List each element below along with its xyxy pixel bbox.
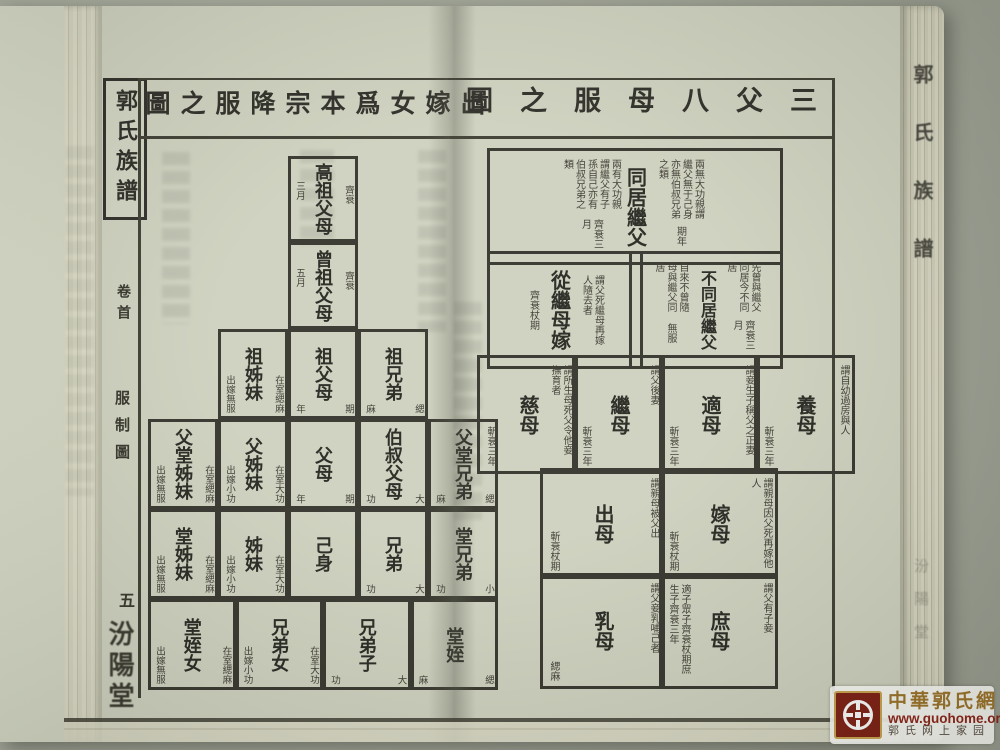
relation-label: 同居繼父 xyxy=(621,167,650,247)
mourning-note: 功 xyxy=(328,675,339,685)
parent-cell: 先曾與繼父同居今不同居 齊衰三月 不同居繼父 自來不曾隨母與繼父同居 無服 xyxy=(629,251,783,369)
kin-label: 祖兄弟 xyxy=(380,347,406,401)
mourning-note: 齊衰 xyxy=(342,271,353,290)
spine-hall-name: 汾陽堂 xyxy=(910,558,931,657)
definition-note: 謂妾生子稱父之正妻 xyxy=(742,365,754,464)
mourning-note: 在室緦麻 xyxy=(202,465,213,503)
guohome-logo-icon xyxy=(834,691,882,739)
definition-note: 謂父後妻 xyxy=(647,365,659,464)
kin-label: 己身 xyxy=(310,536,336,572)
annotation-pair: 兩有大功親謂繼父有子孫自己亦有伯叔兄弟之類 齊衰三月 xyxy=(567,159,615,254)
photo-scene: 郭氏族譜 卷首 服制圖 五 汾陽堂 出嫁女爲本宗降服之圖 齊衰 高祖父母 三月 … xyxy=(0,0,1000,750)
definition-note: 謂父死繼母再嫁人隨去者 xyxy=(580,275,604,345)
book-fore-edge: 郭氏族譜 汾陽堂 xyxy=(900,6,944,742)
kin-label: 父堂姊妹 xyxy=(170,428,196,500)
definition-note: 謂所生母死父令他妾撫育者 xyxy=(548,365,572,464)
bleedthrough-ghost xyxy=(66,146,94,496)
mourning-note: 麻 xyxy=(363,404,374,414)
mother-cell: 謂自幼過房與人 養母 斬衰三年 xyxy=(754,355,855,474)
kin-cell: 在室緦麻 父堂姊妹 出嫁無服 xyxy=(148,419,218,509)
right-page: 三父八母服之圖 兩無大功親謂繼父無于己身亦無伯叔兄弟之類 期年 同居繼父 兩有大… xyxy=(442,6,844,718)
definition-note: 兩有大功親謂繼父有子孫自己亦有伯叔兄弟之類 xyxy=(561,159,621,215)
mourning-note: 期 xyxy=(342,494,353,504)
kin-label: 祖姊妹 xyxy=(240,347,266,401)
kin-label: 兄弟 xyxy=(380,536,406,572)
definition-note: 謂親母被父出 xyxy=(647,478,659,569)
kin-cell: 在室緦麻 祖姊妹 出嫁無服 xyxy=(218,329,288,419)
kin-cell: 在室大功 兄弟女 出嫁小功 xyxy=(236,599,324,690)
mourning-note: 麻 xyxy=(416,675,427,685)
mourning-note: 三月 xyxy=(293,181,304,200)
mourning-note: 在室大功 xyxy=(272,555,283,593)
mourning-note: 在室緦麻 xyxy=(272,375,283,413)
page-frame-line xyxy=(448,78,834,80)
mother-cell: 謂親母被父出 出母 斬衰杖期 xyxy=(540,468,665,579)
kin-cell: 期 父母 年 xyxy=(288,419,358,509)
mourning-note: 齊衰 xyxy=(342,185,353,204)
logo-center xyxy=(853,710,863,720)
mourning-note: 緦 xyxy=(412,404,423,414)
site-tagline: 郭氏网上家园 xyxy=(888,726,1000,738)
mourning-grade: 齊衰三月 xyxy=(579,219,603,254)
self-cell: 己身 xyxy=(288,509,358,599)
mourning-note: 期 xyxy=(342,404,353,414)
mourning-note: 功 xyxy=(363,494,374,504)
mourning-grade: 斬衰杖期 xyxy=(547,531,559,571)
relation-label: 不同居繼父 xyxy=(694,270,718,350)
mourning-grade: 適子眾子齊衰杖期庶生子齊衰三年 xyxy=(666,584,690,678)
underlying-page xyxy=(0,6,64,742)
annotation-pair: 自來不曾隨母與繼父同居 無服 xyxy=(652,262,688,358)
mourning-grade: 斬衰三年 xyxy=(761,426,773,466)
margin-divider-line xyxy=(138,78,141,698)
definition-note: 謂自幼過房與人 xyxy=(837,365,849,464)
kin-label: 兄弟子 xyxy=(354,618,380,672)
kin-cell: 大 伯叔父母 功 xyxy=(358,419,428,509)
mother-cell: 謂親母因父死再嫁他人 嫁母 斬衰杖期 xyxy=(659,468,778,579)
relation-label: 出母 xyxy=(588,504,617,544)
mourning-grade: 斬衰三年 xyxy=(579,426,591,466)
title-underline xyxy=(450,136,832,139)
spine-title: 郭氏族譜 xyxy=(907,64,936,296)
kin-cell: 在室緦麻 堂姊妹 出嫁無服 xyxy=(148,509,218,599)
kin-label: 姊妹 xyxy=(240,536,266,572)
parent-cell: 謂父死繼母再嫁人隨去者 從繼母嫁 齊衰杖期 xyxy=(487,251,643,369)
mourning-note: 出嫁小功 xyxy=(223,555,234,593)
mother-cell: 謂父後妻 繼母 斬衰三年 xyxy=(572,355,665,474)
kin-label: 高祖父母 xyxy=(310,163,336,235)
mourning-note: 出嫁無服 xyxy=(153,646,164,684)
kin-cell: 大 兄弟 功 xyxy=(358,509,428,599)
mourning-note: 出嫁無服 xyxy=(223,375,234,413)
page-number: 五 xyxy=(112,592,136,608)
annotation-pair: 兩無大功親謂繼父無于己身亦無伯叔兄弟之類 期年 xyxy=(656,159,704,254)
mourning-note: 在室緦麻 xyxy=(202,555,213,593)
watermark-text: 中華郭氏網 www.guohome.org 郭氏网上家园 xyxy=(888,692,1000,738)
mourning-note: 大 xyxy=(412,494,423,504)
right-page-title: 三父八母服之圖 xyxy=(450,86,828,118)
mourning-grade: 齊衰三月 xyxy=(730,320,754,358)
page-stack-bottom-edge xyxy=(64,718,900,742)
mourning-grade: 無服 xyxy=(664,323,676,343)
kin-label: 父母 xyxy=(310,446,336,482)
mourning-note: 大 xyxy=(412,584,423,594)
watermark: 中華郭氏網 www.guohome.org 郭氏网上家园 xyxy=(830,686,994,744)
definition-note: 先曾與繼父同居今不同居 xyxy=(724,262,760,317)
left-page: 郭氏族譜 卷首 服制圖 五 汾陽堂 出嫁女爲本宗降服之圖 齊衰 高祖父母 三月 … xyxy=(102,6,442,718)
mourning-note: 出嫁無服 xyxy=(153,465,164,503)
mourning-note: 大 xyxy=(395,675,406,685)
kin-label: 堂姪女 xyxy=(179,618,205,672)
kin-cell: 期 祖父母 年 xyxy=(288,329,358,419)
definition-note: 自來不曾隨母與繼父同居 xyxy=(652,262,688,320)
relation-label: 庶母 xyxy=(704,611,733,651)
mourning-note: 出嫁無服 xyxy=(153,555,164,593)
relation-label: 適母 xyxy=(695,395,724,435)
kin-label: 祖父母 xyxy=(310,347,336,401)
mourning-note: 功 xyxy=(363,584,374,594)
margin-volume-label: 卷首 xyxy=(112,284,132,326)
mourning-note: 出嫁小功 xyxy=(241,646,252,684)
kin-cell: 齊衰 曾祖父母 五月 xyxy=(288,242,358,329)
kin-cell: 齊衰 高祖父母 三月 xyxy=(288,156,358,242)
kin-label: 曾祖父母 xyxy=(310,250,336,322)
definition-note: 謂父有子妾 xyxy=(760,583,772,679)
definition-note: 兩無大功親謂繼父無于己身亦無伯叔兄弟之類 xyxy=(656,159,704,223)
mourning-note: 年 xyxy=(293,494,304,504)
mourning-grade: 齊衰杖期 xyxy=(527,290,539,330)
mourning-note: 在室大功 xyxy=(272,465,283,503)
relation-label: 從繼母嫁 xyxy=(545,270,574,350)
relation-label: 嫁母 xyxy=(704,504,733,544)
kin-label: 父姊妹 xyxy=(240,437,266,491)
definition-note: 謂父妾乳哺己者 xyxy=(647,583,659,679)
mourning-grade: 斬衰三年 xyxy=(484,426,496,466)
three-fathers-eight-mothers-diagram: 兩無大功親謂繼父無于己身亦無伯叔兄弟之類 期年 同居繼父 兩有大功親謂繼父有子孫… xyxy=(477,148,849,683)
annotation-pair: 先曾與繼父同居今不同居 齊衰三月 xyxy=(724,262,760,358)
genealogy-book: 郭氏族譜 卷首 服制圖 五 汾陽堂 出嫁女爲本宗降服之圖 齊衰 高祖父母 三月 … xyxy=(0,6,944,742)
site-name: 中華郭氏網 xyxy=(888,692,1000,712)
mourning-grade: 斬衰杖期 xyxy=(666,531,678,571)
mourning-note: 年 xyxy=(293,404,304,414)
mourning-note: 在室大功 xyxy=(307,646,318,684)
kin-cell: 緦 祖兄弟 麻 xyxy=(358,329,428,419)
relation-label: 養母 xyxy=(790,395,819,435)
mourning-grade: 期年 xyxy=(674,226,686,246)
mourning-grade: 斬衰三年 xyxy=(666,426,678,466)
definition-note: 謂親母因父死再嫁他人 xyxy=(748,478,772,569)
parent-cell: 兩無大功親謂繼父無于己身亦無伯叔兄弟之類 期年 同居繼父 兩有大功親謂繼父有子孫… xyxy=(487,148,783,265)
kin-cell: 大 兄弟子 功 xyxy=(323,599,411,690)
relation-label: 慈母 xyxy=(513,395,542,435)
mourning-note: 在室緦麻 xyxy=(220,646,231,684)
kin-cell: 在室緦麻 堂姪女 出嫁無服 xyxy=(148,599,236,690)
relation-label: 繼母 xyxy=(604,395,633,435)
mourning-grade: 緦麻 xyxy=(547,661,559,681)
mother-cell: 謂所生母死父令他妾撫育者 慈母 斬衰三年 xyxy=(477,355,578,474)
relation-label: 乳母 xyxy=(588,611,617,651)
kin-cell: 在室大功 姊妹 出嫁小功 xyxy=(218,509,288,599)
kin-cell: 在室大功 父姊妹 出嫁小功 xyxy=(218,419,288,509)
hall-name: 汾陽堂 xyxy=(101,620,138,713)
mother-cell: 謂妾生子稱父之正妻 適母 斬衰三年 xyxy=(659,355,760,474)
mourning-note: 五月 xyxy=(293,268,304,287)
kin-label: 堂姊妹 xyxy=(170,527,196,581)
mourning-note: 出嫁小功 xyxy=(223,465,234,503)
mother-cell: 謂父有子妾 庶母 適子眾子齊衰杖期庶生子齊衰三年 xyxy=(659,573,778,689)
margin-section-label: 服制圖 xyxy=(111,390,132,471)
mother-cell: 謂父妾乳哺己者 乳母 緦麻 xyxy=(540,573,665,689)
kin-label: 伯叔父母 xyxy=(380,428,406,500)
kin-label: 兄弟女 xyxy=(266,618,292,672)
